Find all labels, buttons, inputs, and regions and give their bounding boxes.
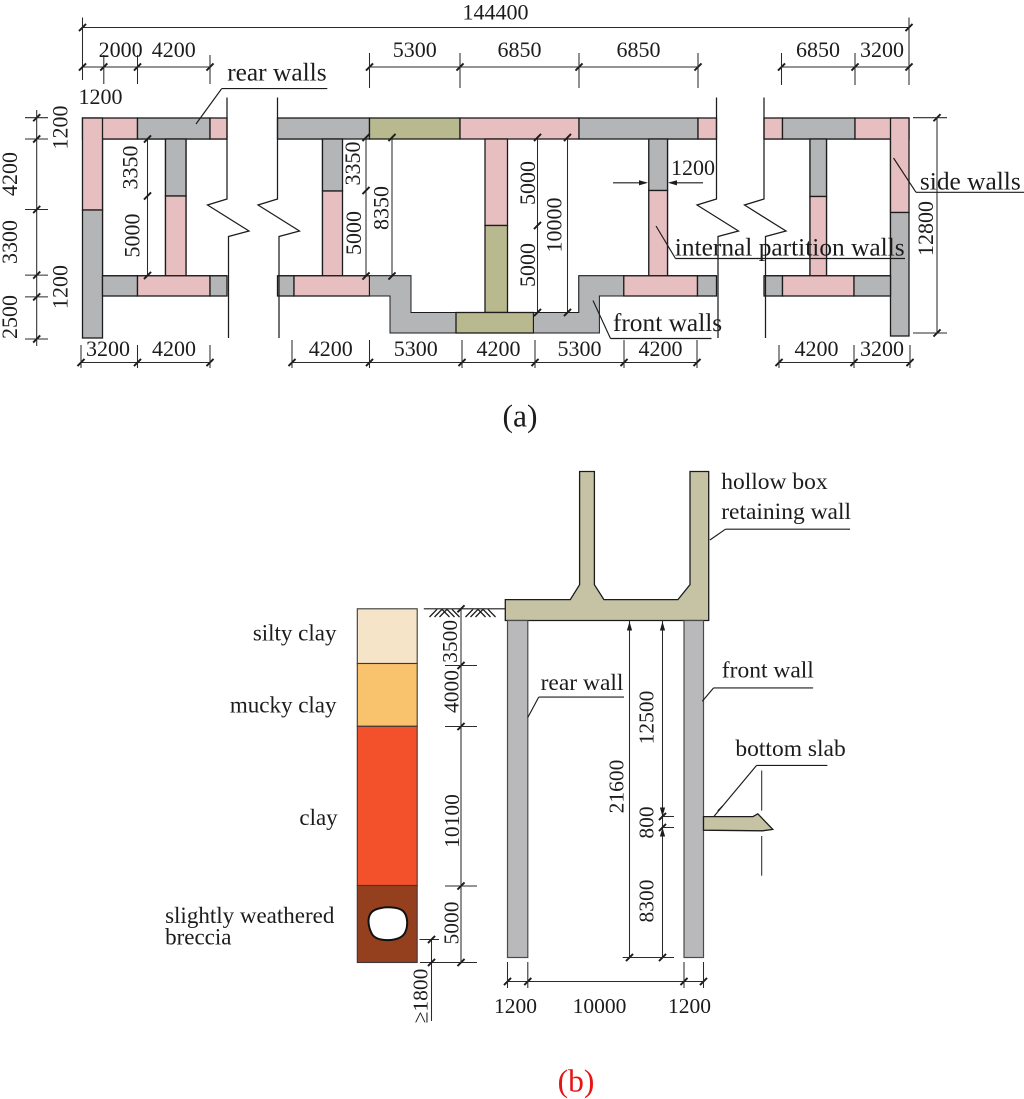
svg-text:front wall: front wall (722, 658, 814, 684)
svg-text:4200: 4200 (795, 336, 839, 361)
svg-text:5000: 5000 (515, 243, 540, 287)
svg-text:3350: 3350 (340, 142, 365, 186)
svg-text:1200: 1200 (48, 265, 73, 309)
svg-text:4200: 4200 (639, 336, 683, 361)
svg-text:3350: 3350 (118, 146, 143, 190)
svg-text:4200: 4200 (152, 37, 196, 62)
svg-text:3300: 3300 (0, 220, 22, 264)
svg-text:800: 800 (635, 806, 659, 838)
svg-text:3200: 3200 (860, 336, 904, 361)
svg-text:5000: 5000 (515, 161, 540, 205)
svg-text:2500: 2500 (0, 295, 22, 339)
svg-text:10100: 10100 (440, 794, 464, 848)
svg-text:5300: 5300 (394, 336, 438, 361)
svg-text:144400: 144400 (463, 0, 529, 25)
svg-text:3200: 3200 (860, 37, 904, 62)
svg-text:4200: 4200 (152, 336, 196, 361)
svg-text:6850: 6850 (796, 37, 840, 62)
svg-text:1200: 1200 (668, 994, 711, 1018)
svg-text:bottom slab: bottom slab (735, 736, 845, 762)
svg-text:8350: 8350 (369, 186, 394, 230)
svg-text:≥1800: ≥1800 (409, 969, 433, 1024)
svg-text:10000: 10000 (542, 198, 567, 253)
svg-text:5000: 5000 (440, 902, 464, 945)
svg-text:4200: 4200 (309, 336, 353, 361)
svg-text:10000: 10000 (573, 994, 627, 1018)
svg-text:(b): (b) (558, 1064, 595, 1099)
svg-text:1200: 1200 (79, 84, 123, 109)
svg-text:5000: 5000 (120, 214, 145, 258)
svg-text:12500: 12500 (635, 691, 659, 745)
svg-text:(a): (a) (503, 399, 538, 434)
svg-text:5300: 5300 (558, 336, 602, 361)
svg-text:rear walls: rear walls (227, 59, 326, 87)
svg-text:front walls: front walls (613, 309, 722, 337)
svg-text:internal partition walls: internal partition walls (675, 234, 905, 262)
svg-text:5000: 5000 (341, 211, 366, 255)
svg-text:6850: 6850 (498, 37, 542, 62)
svg-text:silty clay: silty clay (253, 620, 337, 645)
svg-text:retaining wall: retaining wall (721, 499, 851, 525)
svg-text:8300: 8300 (635, 880, 659, 923)
svg-text:21600: 21600 (605, 760, 629, 814)
svg-text:6850: 6850 (617, 37, 661, 62)
svg-text:side walls: side walls (920, 168, 1021, 196)
svg-text:12800: 12800 (913, 201, 938, 256)
svg-text:1200: 1200 (494, 994, 537, 1018)
svg-text:3500: 3500 (438, 620, 462, 663)
svg-text:clay: clay (299, 805, 338, 830)
svg-text:mucky clay: mucky clay (230, 693, 337, 718)
svg-text:4000: 4000 (440, 670, 464, 713)
svg-text:breccia: breccia (165, 924, 231, 949)
svg-text:4200: 4200 (477, 336, 521, 361)
svg-text:rear wall: rear wall (541, 670, 624, 696)
svg-text:1200: 1200 (48, 106, 73, 150)
svg-text:4200: 4200 (0, 152, 22, 196)
svg-text:3200: 3200 (86, 336, 130, 361)
svg-text:2000: 2000 (99, 37, 143, 62)
svg-text:1200: 1200 (671, 155, 715, 180)
svg-text:5300: 5300 (393, 37, 437, 62)
svg-text:hollow box: hollow box (721, 469, 828, 495)
